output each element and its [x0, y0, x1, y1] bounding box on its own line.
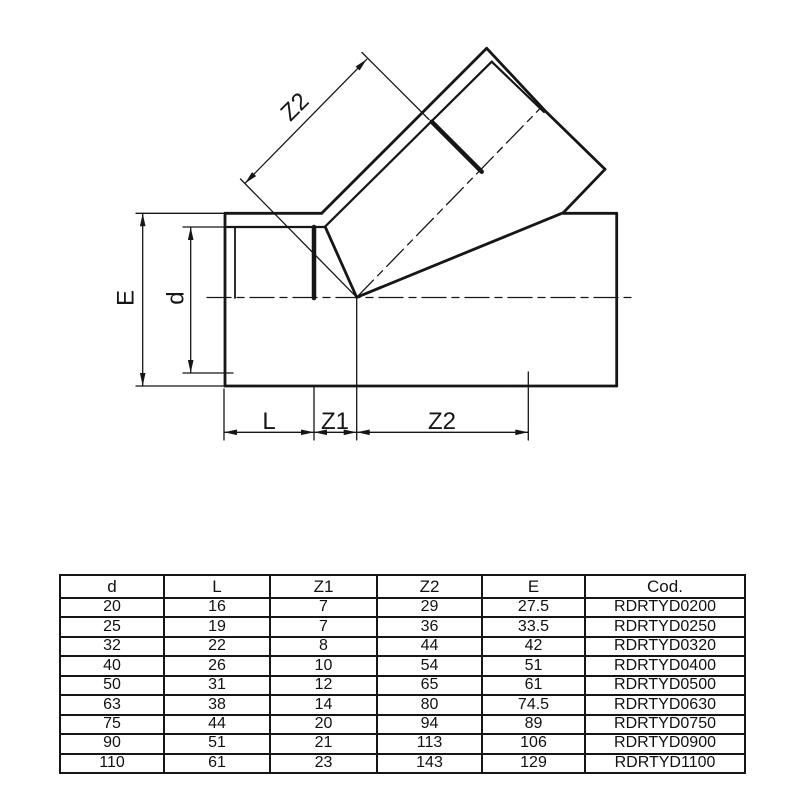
page: E d Z2: [0, 0, 800, 800]
table-cell: 12: [270, 676, 377, 695]
arrowhead: [140, 213, 146, 226]
table-cell: 29: [377, 598, 482, 617]
table-cell: 20: [270, 715, 377, 734]
table-cell: 36: [377, 617, 482, 636]
table-cell: 14: [270, 695, 377, 714]
branch-end-face-outer: [487, 48, 545, 110]
table-row: 75 44 20 94 89 RDRTYD0750: [60, 715, 745, 734]
table-cell: 51: [164, 734, 270, 753]
table-cell: 19: [164, 617, 270, 636]
table-row: 40 26 10 54 51 RDRTYD0400: [60, 656, 745, 675]
table-cell: 129: [482, 754, 585, 774]
table-cell: 31: [164, 676, 270, 695]
table-cell: 89: [482, 715, 585, 734]
col-header-cod: Cod.: [585, 575, 745, 598]
table-cell: 8: [270, 637, 377, 656]
table-cell: RDRTYD0750: [585, 715, 745, 734]
table-cell: RDRTYD0400: [585, 656, 745, 675]
table-cell: 23: [270, 754, 377, 774]
crotch-right: [357, 213, 564, 298]
table-cell: 61: [164, 754, 270, 774]
table-cell: 22: [164, 637, 270, 656]
table-cell: 40: [60, 656, 164, 675]
col-header-Z2: Z2: [377, 575, 482, 598]
table-cell: 54: [377, 656, 482, 675]
arrowhead: [188, 360, 194, 373]
table-cell: RDRTYD0250: [585, 617, 745, 636]
table-cell: 44: [377, 637, 482, 656]
dimension-Z2-branch: Z2: [241, 53, 430, 298]
table-cell: 42: [482, 637, 585, 656]
branch-centerline: [357, 107, 542, 297]
table-row: 32 22 8 44 42 RDRTYD0320: [60, 637, 745, 656]
table-cell: 7: [270, 598, 377, 617]
table-row: 90 51 21 113 106 RDRTYD0900: [60, 734, 745, 753]
col-header-d: d: [60, 575, 164, 598]
table-row: 110 61 23 143 129 RDRTYD1100: [60, 754, 745, 774]
table-cell: 51: [482, 656, 585, 675]
dim-label-E: E: [113, 290, 140, 306]
dim-label-Z2-run: Z2: [428, 408, 456, 435]
table-cell: 110: [60, 754, 164, 774]
table-cell: 61: [482, 676, 585, 695]
table-cell: 33.5: [482, 617, 585, 636]
table-cell: 26: [164, 656, 270, 675]
table-cell: RDRTYD1100: [585, 754, 745, 774]
table-cell: 65: [377, 676, 482, 695]
table-cell: 44: [164, 715, 270, 734]
table-cell: 80: [377, 695, 482, 714]
table-cell: 63: [60, 695, 164, 714]
table-cell: 7: [270, 617, 377, 636]
table-cell: 10: [270, 656, 377, 675]
dim-line: [245, 59, 367, 183]
table-cell: 74.5: [482, 695, 585, 714]
table-cell: 21: [270, 734, 377, 753]
table-row: 50 31 12 65 61 RDRTYD0500: [60, 676, 745, 695]
branch-outer-right-wall: [545, 111, 605, 170]
arrowhead: [224, 430, 237, 436]
table-cell: 75: [60, 715, 164, 734]
table-cell: 113: [377, 734, 482, 753]
branch-inner-left-wall: [325, 62, 492, 227]
left-socket: [227, 227, 325, 298]
branch-socket-depth-line: [432, 122, 482, 172]
table-cell: 27.5: [482, 598, 585, 617]
arrowhead: [357, 430, 370, 436]
table-cell: RDRTYD0320: [585, 637, 745, 656]
table-cell: 16: [164, 598, 270, 617]
table-cell: RDRTYD0630: [585, 695, 745, 714]
branch-end-face-inner: [492, 62, 544, 112]
arrowhead: [188, 227, 194, 240]
table-cell: 20: [60, 598, 164, 617]
table-row: 25 19 7 36 33.5 RDRTYD0250: [60, 617, 745, 636]
table-cell: 32: [60, 637, 164, 656]
dimension-d: d: [163, 227, 234, 373]
dim-label-Z1: Z1: [321, 408, 349, 435]
table-row: 63 38 14 80 74.5 RDRTYD0630: [60, 695, 745, 714]
ext-line: [362, 53, 429, 120]
table-cell: RDRTYD0200: [585, 598, 745, 617]
table-cell: 143: [377, 754, 482, 774]
table-cell: 38: [164, 695, 270, 714]
arrowhead: [515, 430, 528, 436]
branch-outline: [322, 48, 605, 226]
col-header-Z1: Z1: [270, 575, 377, 598]
table-cell: 94: [377, 715, 482, 734]
table-cell: 106: [482, 734, 585, 753]
arrowhead: [140, 373, 146, 386]
centerlines: [207, 107, 631, 298]
table-cell: 25: [60, 617, 164, 636]
crotch-left: [326, 228, 357, 298]
col-header-L: L: [164, 575, 270, 598]
fitting-drawing: E d Z2: [0, 0, 800, 560]
table-header-row: d L Z1 Z2 E Cod.: [60, 575, 745, 598]
table-cell: 90: [60, 734, 164, 753]
table-row: 20 16 7 29 27.5 RDRTYD0200: [60, 598, 745, 617]
table-cell: RDRTYD0500: [585, 676, 745, 695]
table-cell: 50: [60, 676, 164, 695]
arrowhead: [301, 430, 314, 436]
dim-label-d: d: [163, 291, 190, 304]
dim-label-L: L: [262, 408, 275, 435]
dim-label-Z2-branch: Z2: [276, 88, 315, 127]
dimension-bottom-row: L Z1 Z2: [224, 297, 528, 440]
col-header-E: E: [482, 575, 585, 598]
branch-socket-end-edge: [563, 169, 605, 212]
main-body-outline: [225, 213, 617, 386]
table-cell: RDRTYD0900: [585, 734, 745, 753]
dimensions-table: d L Z1 Z2 E Cod. 20 16 7 29 27.5 RDRTYD0…: [59, 574, 746, 774]
